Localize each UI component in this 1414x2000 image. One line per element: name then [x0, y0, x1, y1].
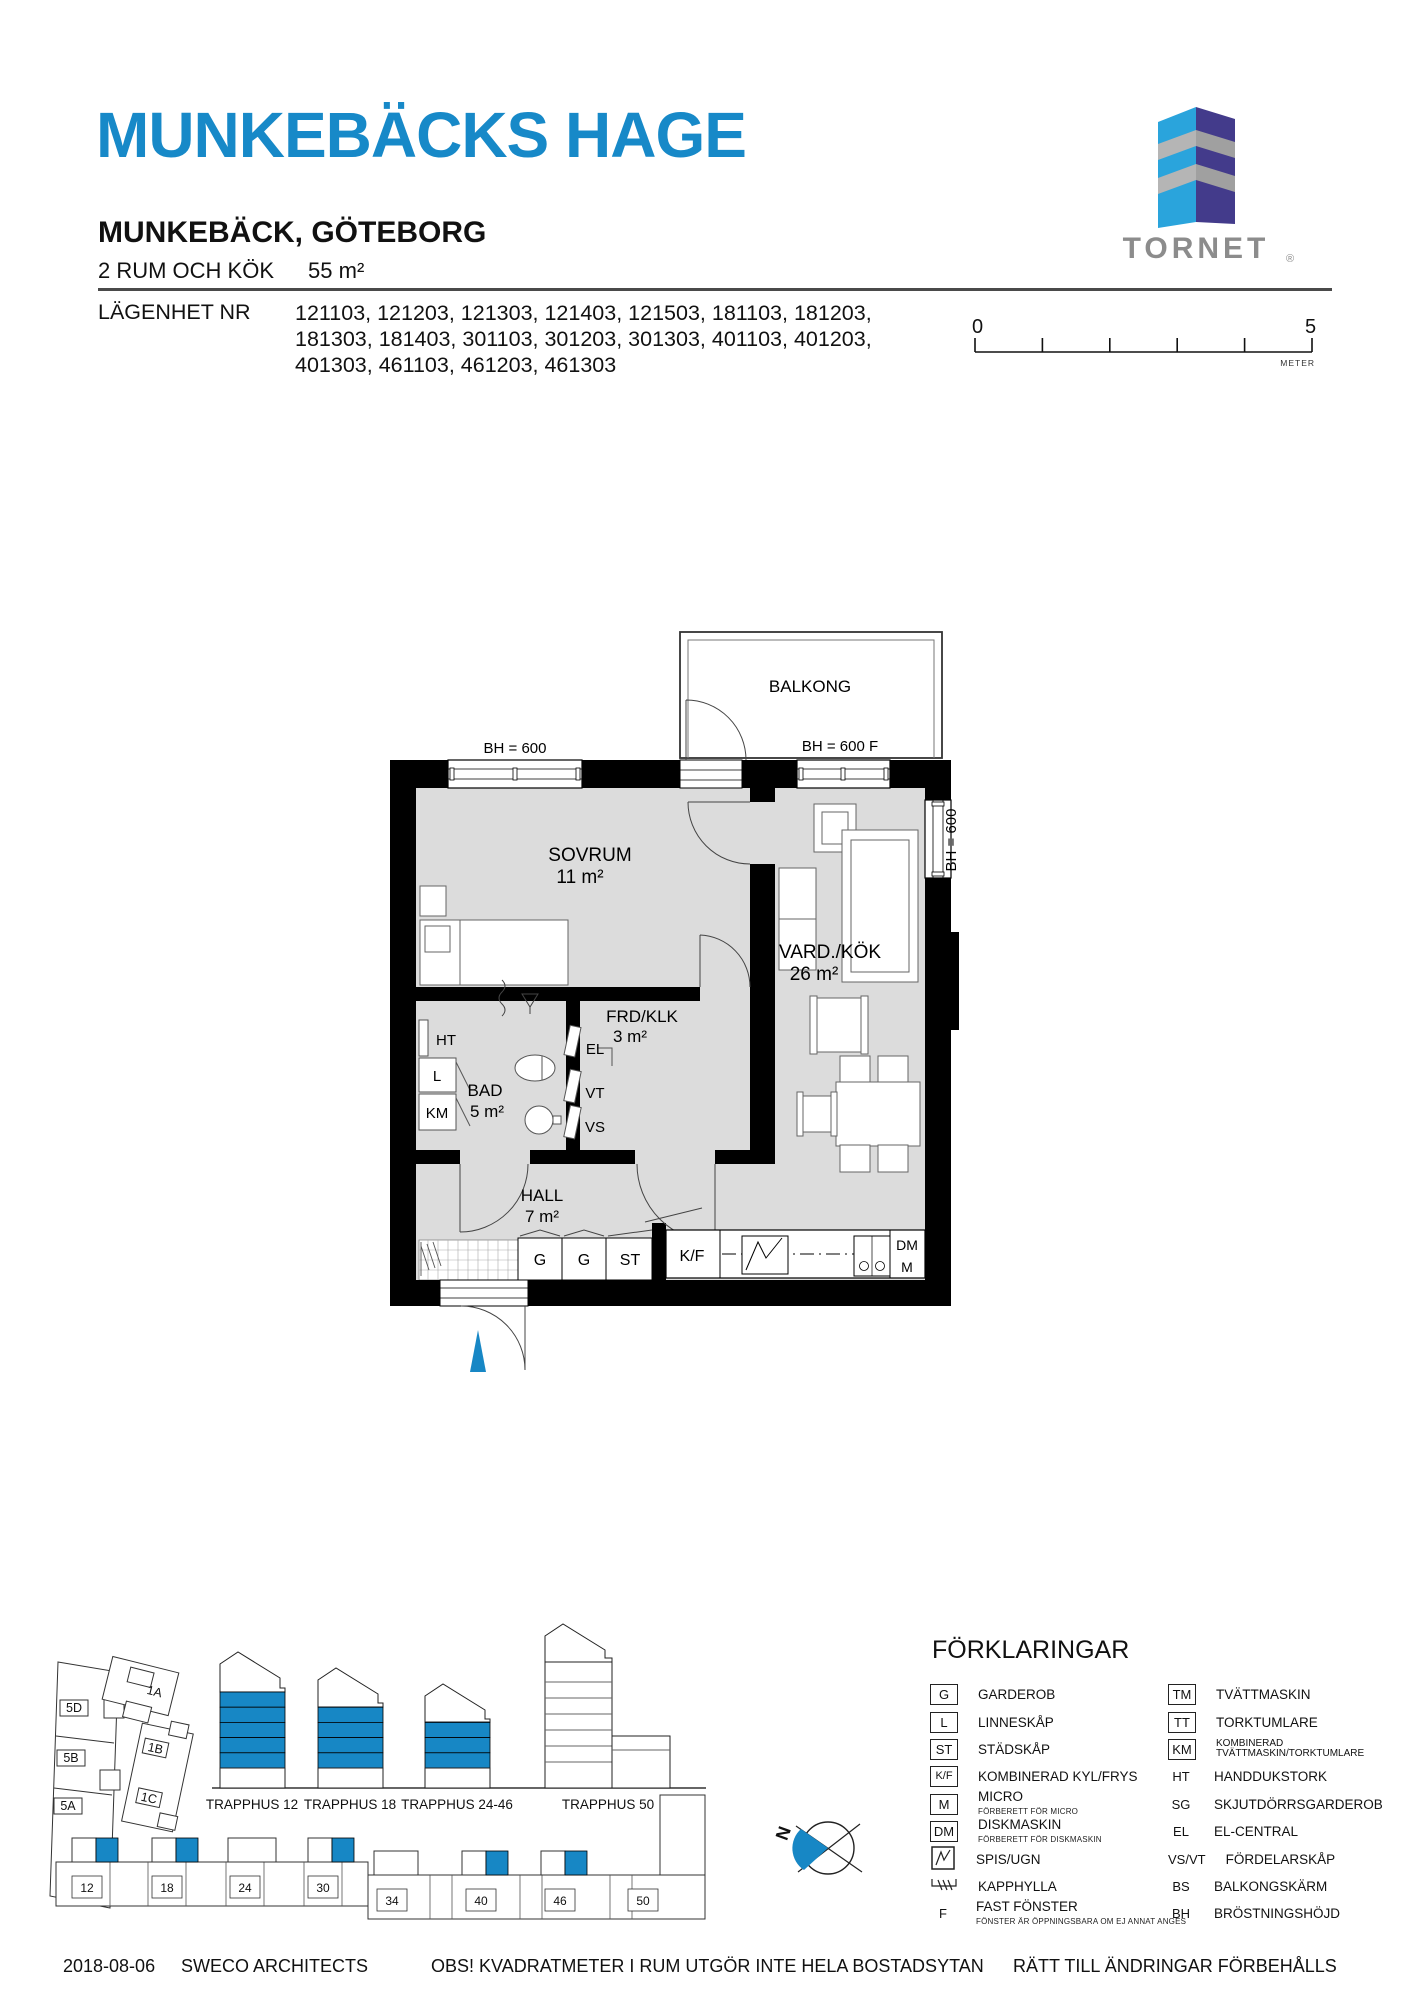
legend-row-spis: SPIS/UGN [930, 1845, 1168, 1872]
garderob2-label: G [578, 1252, 590, 1269]
micro-symbol: M [930, 1794, 958, 1815]
registered-mark: ® [1286, 253, 1294, 265]
legend-row-brostningshojd: BH BRÖSTNINGSHÖJD [1168, 1900, 1400, 1927]
block-label: 5A [60, 1799, 76, 1813]
apartment-area: 55 m² [308, 258, 364, 283]
balcony-label: BALKONG [769, 677, 851, 696]
legend-row-skjutdorrsgarderob: SG SKJUTDÖRRSGARDEROB [1168, 1791, 1400, 1818]
legend-row-kombimaskin: KM KOMBINERADTVÄTTMASKIN/TORKTUMLARE [1168, 1736, 1400, 1763]
legend-row-elcentral: EL EL-CENTRAL [1168, 1818, 1400, 1845]
bh-balcony-label: BH = 600 F [802, 738, 878, 755]
kylfrys-label: K/F [680, 1248, 705, 1265]
legend-column-1: G GARDEROB L LINNESKÅP ST STÄDSKÅP K/F K… [930, 1681, 1168, 1928]
apartment-number-label: LÄGENHET NR [98, 300, 251, 325]
garderob-symbol: G [930, 1684, 958, 1705]
footer-architect: SWECO ARCHITECTS [181, 1956, 368, 1977]
building-label: TRAPPHUS 50 [562, 1797, 654, 1812]
stadskap-label: ST [620, 1252, 641, 1269]
legend-row-fast-fonster: F FAST FÖNSTERFÖNSTER ÄR ÖPPNINGSBARA OM… [930, 1900, 1168, 1927]
skjutdorrsgarderob-symbol: SG [1168, 1797, 1194, 1812]
dining-chair [840, 1145, 870, 1172]
apartment-numbers-line: 181303, 181403, 301103, 301203, 301303, … [295, 326, 872, 352]
building-label: TRAPPHUS 18 [304, 1797, 396, 1812]
legend-row-micro: M MICROFÖRBERETT FÖR MICRO [930, 1791, 1168, 1818]
km-label: KM [426, 1105, 449, 1122]
legend-row-linneskap: L LINNESKÅP [930, 1708, 1168, 1735]
stadskap-symbol: ST [930, 1739, 958, 1760]
legend-row-tvattmaskin: TM TVÄTTMASKIN [1168, 1681, 1400, 1708]
apartment-type-line: 2 RUM OCH KÖK55 m² [98, 258, 364, 284]
tvattmaskin-symbol: TM [1168, 1684, 1196, 1705]
el-label: EL [586, 1041, 604, 1058]
apartment-numbers-line: 401303, 461103, 461203, 461303 [295, 352, 872, 378]
legend-row-fordelarskap: VS/VT FÖRDELARSKÅP [1168, 1845, 1400, 1872]
room-sovrum-area: 11 m² [556, 867, 603, 888]
toilet [515, 1055, 555, 1081]
room-hall-label: HALL [521, 1186, 564, 1205]
building-label: TRAPPHUS 24-46 [401, 1797, 513, 1812]
dining-table [836, 1082, 920, 1146]
tornet-wordmark: TORNET [1123, 232, 1270, 265]
floorplan: BALKONG [390, 630, 965, 1390]
kapphylla-icon [930, 1877, 958, 1896]
strip-number: 46 [553, 1894, 567, 1908]
towel-dryer [419, 1020, 428, 1056]
strip-number: 12 [80, 1881, 94, 1895]
ht-label: HT [436, 1032, 456, 1049]
bed-pillow [425, 926, 450, 952]
bh-right-label: BH = 600 [943, 809, 960, 872]
linneskap-symbol: L [930, 1712, 958, 1733]
room-bad-label: BAD [468, 1081, 503, 1100]
fast-fonster-symbol: F [930, 1906, 956, 1921]
legend-row-garderob: G GARDEROB [930, 1681, 1168, 1708]
building-label: TRAPPHUS 12 [206, 1797, 298, 1812]
balkongskarm-symbol: BS [1168, 1879, 1194, 1894]
apartment-numbers-line: 121103, 121203, 121303, 121403, 121503, … [295, 300, 872, 326]
header-divider [98, 288, 1332, 291]
tornet-tower-icon [1158, 107, 1235, 228]
footer-note: OBS! KVADRATMETER I RUM UTGÖR INTE HELA … [431, 1956, 984, 1977]
legend-row-kapphylla: KAPPHYLLA [930, 1873, 1168, 1900]
garderob1-label: G [534, 1252, 546, 1269]
footer-date: 2018-08-06 [63, 1956, 155, 1977]
window-sovrum [448, 760, 582, 788]
kombimaskin-symbol: KM [1168, 1739, 1196, 1760]
balcony-door [680, 760, 742, 788]
room-bad-area: 5 m² [470, 1102, 504, 1121]
bh-left-label: BH = 600 [484, 740, 547, 757]
legend-row-kylfrys: K/F KOMBINERAD KYL/FRYS [930, 1763, 1168, 1790]
legend-row-balkongskarm: BS BALKONGSKÄRM [1168, 1873, 1400, 1900]
entry-arrow [470, 1330, 486, 1372]
apartment-numbers: 121103, 121203, 121303, 121403, 121503, … [295, 300, 872, 378]
handdukstork-symbol: HT [1168, 1769, 1194, 1784]
footer-rights: RÄTT TILL ÄNDRINGAR FÖRBEHÅLLS [1013, 1956, 1337, 1977]
vt-label: VT [585, 1085, 604, 1102]
site-plan: 5D 5B 5A 1A 1B 1C TRAPPHUS 12 [0, 1600, 900, 1960]
building-trapphus-18: TRAPPHUS 18 [304, 1668, 396, 1812]
window-vardrum [797, 760, 890, 788]
kitchen-stub-wall [652, 1223, 666, 1280]
legend-row-stadskap: ST STÄDSKÅP [930, 1736, 1168, 1763]
diskmaskin-symbol: DM [930, 1821, 958, 1842]
scale-unit-label: METER [1280, 358, 1315, 368]
elcentral-symbol: EL [1168, 1824, 1194, 1839]
page-title: MUNKEBÄCKS HAGE [96, 100, 746, 170]
tornet-logo: TORNET ® [1080, 104, 1320, 274]
scale-ticks [975, 338, 1312, 352]
kylfrys-symbol: K/F [930, 1766, 958, 1787]
spis-icon [930, 1846, 956, 1873]
balcony-screen-wall [925, 932, 959, 1030]
legend-column-2: TM TVÄTTMASKIN TT TORKTUMLARE KM KOMBINE… [1168, 1681, 1400, 1928]
room-vard-area: 26 m² [790, 964, 839, 985]
plan-sheet: MUNKEBÄCKS HAGE MUNKEBÄCK, GÖTEBORG 2 RU… [0, 0, 1414, 2000]
strip-number: 40 [474, 1894, 488, 1908]
strip-number: 24 [238, 1881, 252, 1895]
sink [525, 1106, 553, 1134]
nightstand [420, 886, 446, 916]
dining-chair [878, 1056, 908, 1083]
vs-label: VS [585, 1119, 605, 1136]
room-hall-area: 7 m² [525, 1207, 559, 1226]
legend: FÖRKLARINGAR G GARDEROB L LINNESKÅP ST S… [930, 1636, 1400, 1928]
strip-number: 50 [636, 1894, 650, 1908]
entry-door-swing [461, 1306, 525, 1370]
l-label: L [433, 1068, 441, 1085]
building-trapphus-24-46: TRAPPHUS 24-46 [401, 1684, 513, 1812]
block-label: 5D [66, 1701, 82, 1715]
block-1b-1c [122, 1715, 197, 1832]
block-label: 5B [63, 1751, 78, 1765]
building-trapphus-12: TRAPPHUS 12 [206, 1652, 298, 1812]
strip-number: 30 [316, 1881, 330, 1895]
torktumlare-symbol: TT [1168, 1712, 1196, 1733]
strip-number: 34 [385, 1894, 399, 1908]
room-frd-label: FRD/KLK [606, 1007, 678, 1026]
building-trapphus-50: TRAPPHUS 50 [545, 1624, 670, 1812]
room-count: 2 RUM OCH KÖK [98, 258, 274, 283]
room-vard-label: VARD./KÖK [779, 942, 881, 963]
scale-start-label: 0 [972, 316, 983, 338]
dining-chair [840, 1056, 870, 1083]
micro-label: M [901, 1259, 913, 1275]
entry-tiles [419, 1240, 518, 1280]
room-frd-area: 3 m² [613, 1027, 647, 1046]
brostningshojd-symbol: BH [1168, 1906, 1194, 1921]
armchair [816, 998, 862, 1052]
dining-armchair [802, 1096, 832, 1132]
legend-row-diskmaskin: DM DISKMASKINFÖRBERETT FÖR DISKMASKIN [930, 1818, 1168, 1845]
legend-row-handdukstork: HT HANDDUKSTORK [1168, 1763, 1400, 1790]
page-subtitle: MUNKEBÄCK, GÖTEBORG [98, 216, 486, 250]
legend-title: FÖRKLARINGAR [932, 1636, 1400, 1665]
room-sovrum-label: SOVRUM [548, 845, 631, 866]
legend-row-torktumlare: TT TORKTUMLARE [1168, 1708, 1400, 1735]
dining-chair [878, 1145, 908, 1172]
scale-end-label: 5 [1305, 316, 1316, 338]
compass-north-label: N [772, 1824, 795, 1843]
strip-number: 18 [160, 1881, 174, 1895]
entry-door-opening [440, 1280, 528, 1306]
diskmaskin-label: DM [896, 1237, 918, 1253]
compass-icon: N [772, 1822, 862, 1874]
fordelarskap-symbol: VS/VT [1168, 1852, 1206, 1867]
scale-bar: 0 5 METER [960, 300, 1340, 380]
